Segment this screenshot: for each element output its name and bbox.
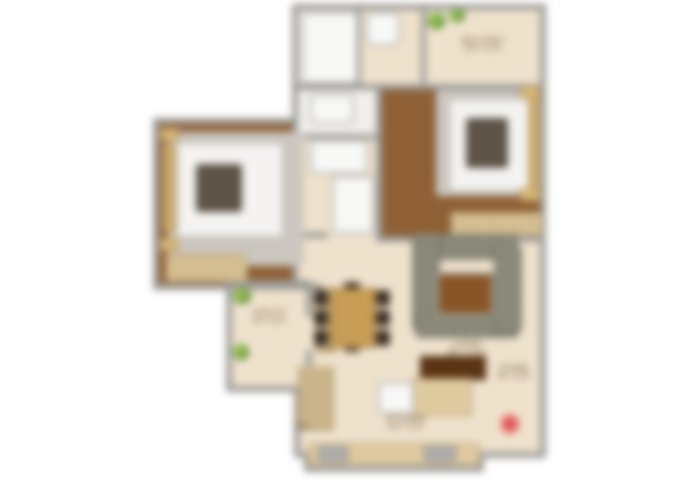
wall-wc-balcony-divider bbox=[421, 6, 426, 86]
kitchen-label-name: KITCHEN bbox=[374, 414, 438, 424]
dining-chair bbox=[314, 290, 328, 306]
bedroom-left-blanket bbox=[196, 164, 242, 212]
dining-chair bbox=[314, 330, 328, 346]
wall-bath-passage bbox=[294, 134, 382, 139]
bedroom-right-headboard bbox=[528, 96, 540, 190]
nightstand bbox=[520, 86, 540, 99]
bedroom-right-blanket bbox=[466, 118, 508, 168]
ref-label-text: REF. bbox=[288, 424, 318, 433]
kitchen-label-dims: 10'0" X 8'0" bbox=[374, 424, 438, 433]
kitchen-counter-dark bbox=[420, 356, 486, 380]
utility-label-name: UTILITY bbox=[238, 308, 302, 318]
bedroom-right-wardrobe bbox=[450, 212, 542, 236]
tv-unit bbox=[494, 246, 522, 332]
floorplan: BALCONY 10'0" X 4'0" UTILITY 6'6" X 9'0" bbox=[0, 0, 700, 488]
plant-icon bbox=[233, 288, 251, 304]
washbasin-icon bbox=[310, 94, 354, 124]
toilet-icon bbox=[366, 12, 400, 46]
dining-chair bbox=[314, 310, 328, 326]
store-label-name: STORE bbox=[492, 364, 536, 374]
stove-icon bbox=[424, 446, 456, 462]
kitchen-counter-right bbox=[412, 378, 472, 416]
ref-label: REF. bbox=[288, 424, 318, 433]
dining-chair bbox=[376, 290, 390, 306]
shower-cubicle bbox=[332, 176, 374, 234]
wall-utility-left bbox=[226, 280, 232, 392]
kitchen-label: KITCHEN 10'0" X 8'0" bbox=[374, 414, 438, 433]
vanity-counter bbox=[310, 140, 368, 174]
bedroom-left-headboard bbox=[163, 144, 176, 232]
plant-icon bbox=[449, 9, 465, 22]
balcony-top-label-name: BALCONY bbox=[448, 36, 518, 46]
nightstand bbox=[160, 238, 178, 251]
store-label: STORE 4'6" X 4'0" bbox=[492, 364, 536, 383]
dining-chair bbox=[376, 310, 390, 326]
wall-lip-bottom bbox=[304, 466, 484, 472]
shower-cubicle bbox=[302, 12, 358, 84]
wall-top bbox=[292, 4, 546, 10]
plant-icon bbox=[427, 13, 445, 29]
floorplan-image: BALCONY 10'0" X 4'0" UTILITY 6'6" X 9'0" bbox=[0, 0, 700, 488]
red-location-dot-icon bbox=[500, 414, 520, 434]
nightstand bbox=[520, 188, 540, 201]
dining-chair bbox=[376, 330, 390, 346]
plant-icon bbox=[233, 344, 249, 360]
door-utility bbox=[306, 318, 313, 348]
sink-icon bbox=[318, 446, 348, 462]
wall-bedroomleft-top bbox=[153, 118, 298, 124]
kitchen-island-sink bbox=[378, 382, 414, 414]
utility-label-dims: 6'6" X 9'0" bbox=[238, 318, 302, 327]
wall-bedroomright-left bbox=[376, 84, 382, 240]
coffee-table bbox=[436, 272, 494, 316]
wall-utility-right-upper bbox=[306, 286, 312, 316]
wall-bedroomleft-left bbox=[153, 118, 159, 290]
nightstand bbox=[160, 128, 178, 141]
kitchen-shelf-unit bbox=[298, 366, 334, 430]
utility-label: UTILITY 6'6" X 9'0" bbox=[238, 308, 302, 327]
bedroom-left-wardrobe bbox=[165, 254, 247, 282]
store-label-dims: 4'6" X 4'0" bbox=[492, 374, 536, 383]
balcony-top-label: BALCONY 10'0" X 4'0" bbox=[448, 36, 518, 55]
dining-table bbox=[330, 288, 376, 348]
living-label-name: LIVING bbox=[432, 340, 502, 350]
balcony-top-label-dims: 10'0" X 4'0" bbox=[448, 46, 518, 55]
